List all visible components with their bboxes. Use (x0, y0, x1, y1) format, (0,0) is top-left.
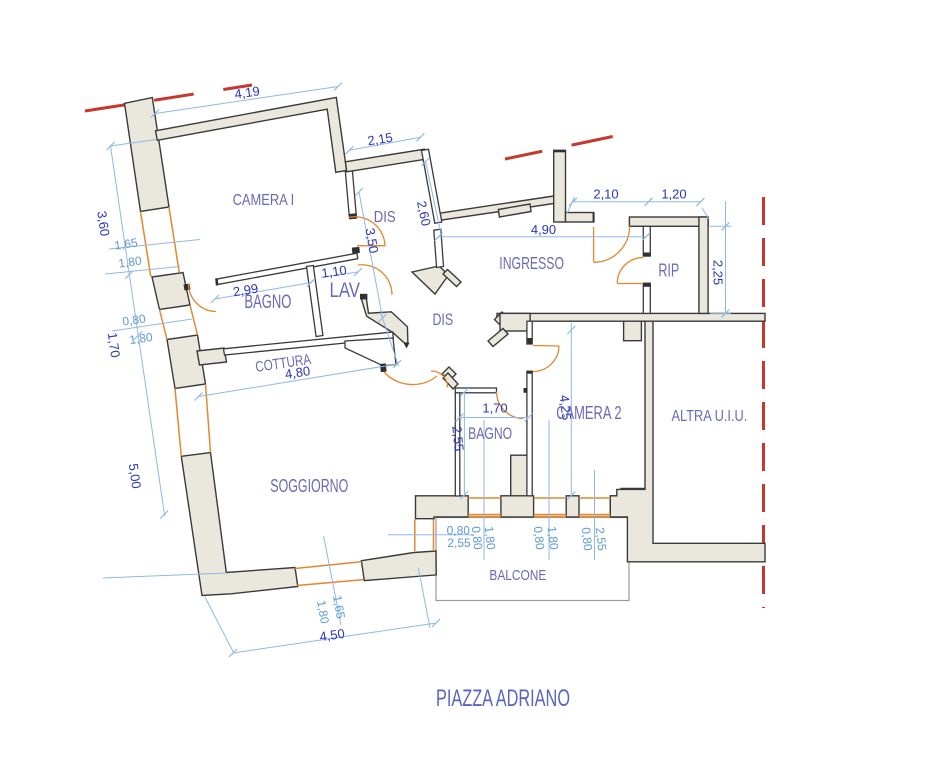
svg-text:BAGNO: BAGNO (244, 292, 291, 313)
svg-text:INGRESSO: INGRESSO (499, 253, 564, 273)
svg-text:SOGGIORNO: SOGGIORNO (270, 476, 348, 496)
svg-text:ALTRA U.I.U.: ALTRA U.I.U. (672, 408, 748, 425)
svg-text:BAGNO: BAGNO (468, 424, 512, 443)
svg-text:CAMERA I: CAMERA I (233, 192, 295, 209)
svg-text:2,25: 2,25 (711, 260, 726, 285)
svg-text:RIP: RIP (658, 261, 679, 281)
svg-text:DIS: DIS (374, 209, 396, 226)
svg-text:1,80: 1,80 (482, 526, 498, 551)
svg-text:4,90: 4,90 (531, 222, 556, 237)
svg-text:BALCONE: BALCONE (489, 567, 546, 584)
svg-text:PIAZZA ADRIANO: PIAZZA ADRIANO (436, 685, 570, 712)
svg-text:DIS: DIS (433, 310, 454, 329)
svg-text:2,55: 2,55 (449, 425, 467, 452)
svg-text:LAV: LAV (330, 279, 361, 302)
svg-text:0,80: 0,80 (531, 526, 547, 551)
svg-text:2,10: 2,10 (593, 187, 618, 202)
svg-text:2,55: 2,55 (593, 527, 609, 552)
svg-text:CAMERA 2: CAMERA 2 (556, 403, 621, 423)
svg-text:1,80: 1,80 (545, 526, 561, 551)
svg-text:0,80: 0,80 (579, 527, 595, 552)
svg-text:1,70: 1,70 (482, 401, 507, 416)
svg-text:2,55: 2,55 (447, 536, 471, 550)
svg-text:1,20: 1,20 (661, 187, 686, 202)
